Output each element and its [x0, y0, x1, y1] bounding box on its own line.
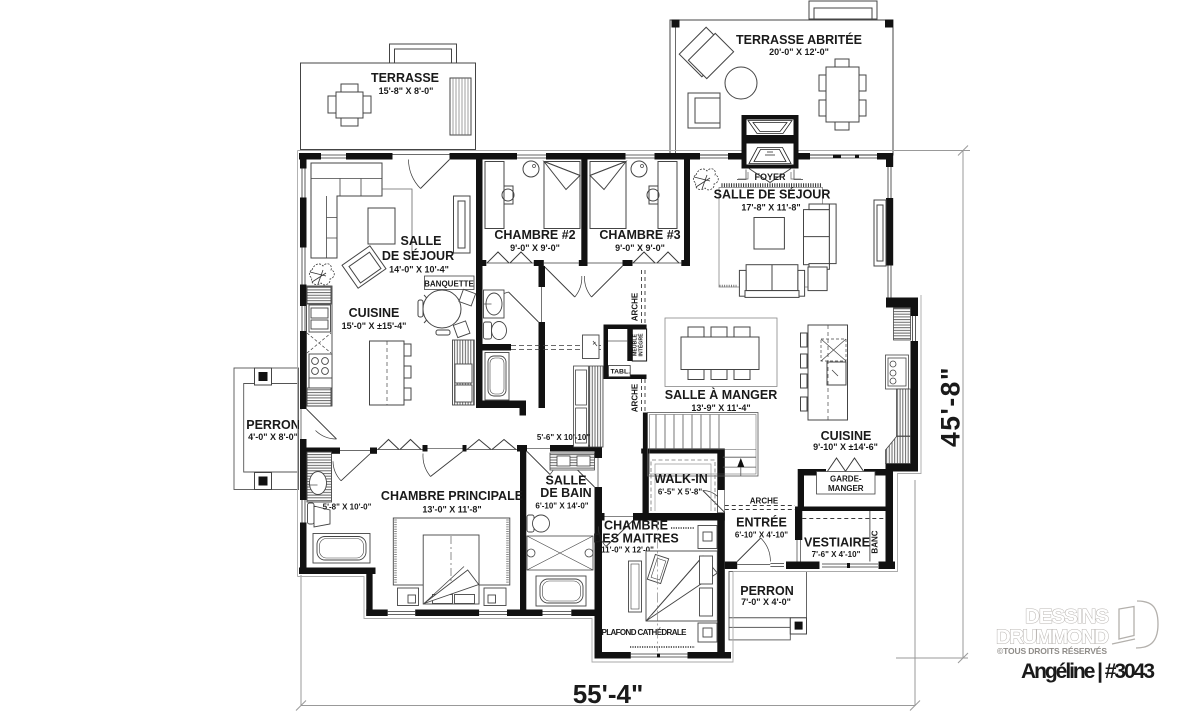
- svg-text:9'-0" X 9'-0": 9'-0" X 9'-0": [510, 243, 560, 253]
- svg-text:SALLE DE SÉJOUR: SALLE DE SÉJOUR: [714, 187, 831, 202]
- svg-text:FOYER: FOYER: [754, 172, 786, 182]
- svg-text:CUISINE: CUISINE: [821, 429, 872, 443]
- svg-text:6'-10" X 14'-0": 6'-10" X 14'-0": [535, 502, 588, 511]
- svg-text:13'-0" X 11'-8": 13'-0" X 11'-8": [422, 505, 481, 515]
- svg-text:CUISINE: CUISINE: [349, 306, 400, 320]
- svg-text:©TOUS DROITS RÉSERVÉS: ©TOUS DROITS RÉSERVÉS: [997, 646, 1107, 656]
- svg-text:Angéline | #3043: Angéline | #3043: [1021, 660, 1155, 683]
- svg-text:7'-6" X 4'-10": 7'-6" X 4'-10": [812, 550, 861, 559]
- svg-text:5'-6" X 10'-10": 5'-6" X 10'-10": [537, 433, 590, 442]
- svg-text:17'-8" X 11'-8": 17'-8" X 11'-8": [741, 203, 800, 213]
- svg-text:PLAFOND CATHÉDRALE: PLAFOND CATHÉDRALE: [602, 628, 688, 637]
- svg-text:BANQUETTE: BANQUETTE: [424, 280, 474, 289]
- svg-text:ARCHE: ARCHE: [750, 497, 779, 506]
- svg-text:6'-5" X 5'-8": 6'-5" X 5'-8": [658, 488, 703, 497]
- svg-text:GARDE-: GARDE-: [830, 475, 862, 484]
- svg-text:55'-4": 55'-4": [573, 679, 644, 709]
- svg-text:VESTIAIRE: VESTIAIRE: [804, 536, 870, 550]
- svg-text:14'-0" X 10'-4": 14'-0" X 10'-4": [389, 265, 449, 275]
- svg-text:ARCHE: ARCHE: [631, 383, 640, 412]
- svg-text:WALK-IN: WALK-IN: [654, 472, 707, 486]
- svg-text:9'-0" X 9'-0": 9'-0" X 9'-0": [615, 243, 665, 253]
- svg-text:9'-10" X ±14'-6": 9'-10" X ±14'-6": [813, 442, 878, 452]
- svg-text:DES MAITRES: DES MAITRES: [593, 532, 678, 546]
- svg-text:TABL.: TABL.: [611, 369, 631, 376]
- svg-text:15'-0" X ±15'-4": 15'-0" X ±15'-4": [342, 321, 407, 331]
- svg-text:ENTRÉE: ENTRÉE: [736, 515, 787, 530]
- svg-text:PERRON: PERRON: [246, 418, 299, 432]
- svg-text:PERRON: PERRON: [740, 584, 793, 598]
- svg-text:CHAMBRE: CHAMBRE: [604, 519, 668, 533]
- svg-text:20'-0" X 12'-0": 20'-0" X 12'-0": [769, 47, 829, 57]
- svg-text:6'-10" X 4'-10": 6'-10" X 4'-10": [735, 531, 788, 540]
- svg-text:7'-0" X 4'-0": 7'-0" X 4'-0": [741, 597, 791, 607]
- svg-text:CHAMBRE #3: CHAMBRE #3: [599, 228, 680, 242]
- svg-text:5'-8" X 10'-0": 5'-8" X 10'-0": [323, 503, 372, 512]
- svg-text:BANC: BANC: [871, 530, 880, 553]
- svg-text:CHAMBRE #2: CHAMBRE #2: [494, 228, 575, 242]
- svg-text:13'-9" X 11'-4": 13'-9" X 11'-4": [691, 403, 750, 413]
- svg-text:DE SÉJOUR: DE SÉJOUR: [382, 248, 454, 263]
- svg-text:ARCHE: ARCHE: [631, 292, 640, 321]
- svg-text:TERRASSE: TERRASSE: [371, 71, 439, 85]
- svg-text:SALLE: SALLE: [401, 234, 442, 248]
- svg-text:CHAMBRE PRINCIPALE: CHAMBRE PRINCIPALE: [381, 489, 523, 503]
- svg-text:TERRASSE ABRITÉE: TERRASSE ABRITÉE: [736, 32, 862, 47]
- svg-text:45'-8": 45'-8": [936, 366, 966, 447]
- svg-text:15'-8" X 8'-0": 15'-8" X 8'-0": [379, 86, 434, 96]
- svg-text:4'-0" X 8'-0": 4'-0" X 8'-0": [248, 432, 298, 442]
- svg-text:SALLE À MANGER: SALLE À MANGER: [665, 387, 778, 402]
- svg-text:DE BAIN: DE BAIN: [540, 486, 591, 500]
- svg-text:MANGER: MANGER: [828, 484, 864, 493]
- svg-text:INTÉGRÉ: INTÉGRÉ: [637, 333, 645, 357]
